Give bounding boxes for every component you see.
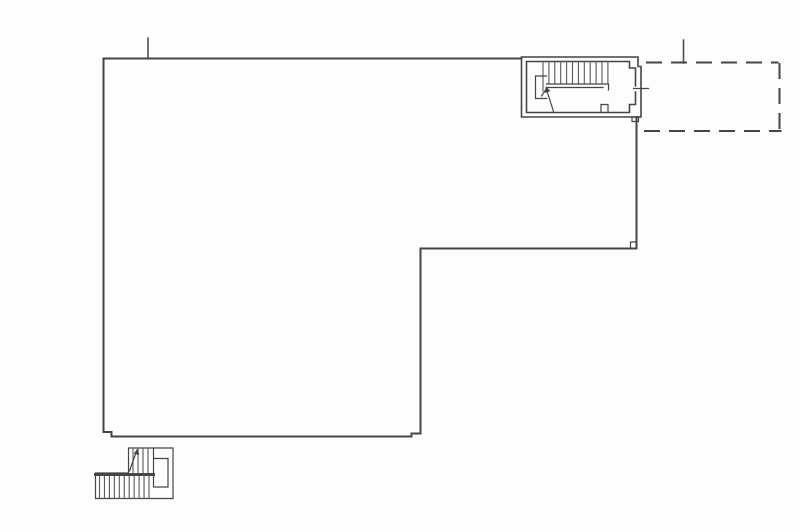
stairwell-bottom-notch [601,105,608,113]
stair-direction-arrow [542,89,554,112]
dashed-extension-outline [645,63,781,132]
building-outline [104,59,637,437]
stairwell-return-wall [536,76,547,99]
exterior-stair-inner-wall [154,448,169,487]
stairwell-handrail [547,84,609,90]
stairwell-treads [543,62,608,92]
floor-plan-drawing [0,0,800,532]
floor-plan-canvas [0,0,800,532]
exterior-stair-treads-lower [100,477,150,499]
